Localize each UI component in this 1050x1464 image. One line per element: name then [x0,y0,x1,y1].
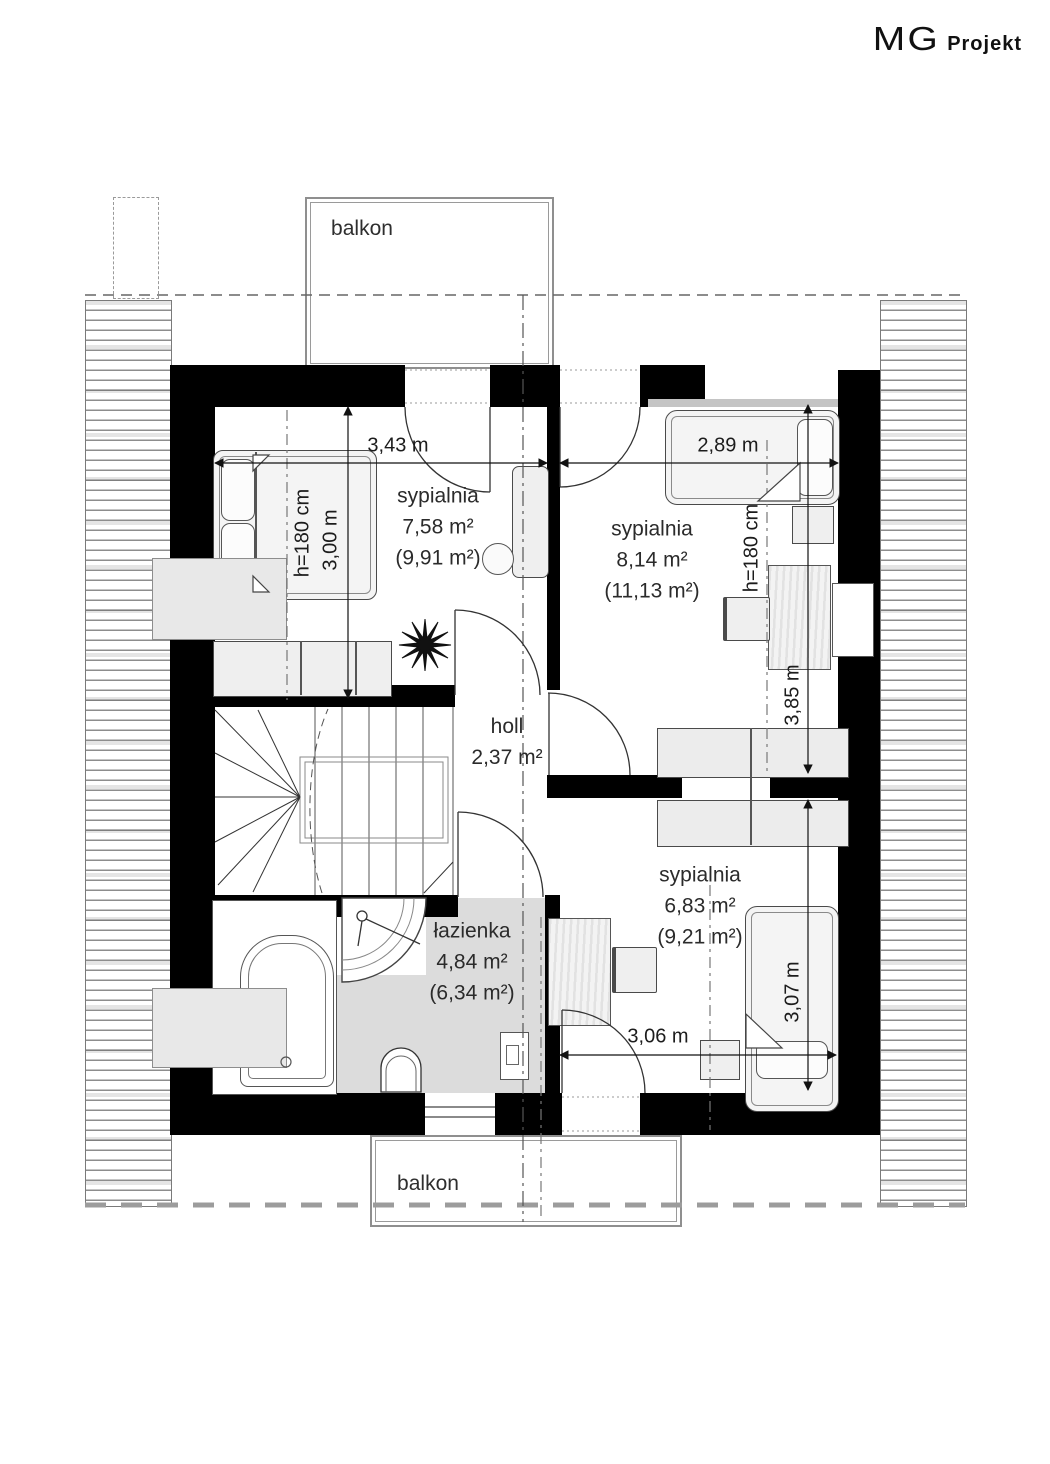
roof-hatch-left [85,300,172,1207]
built-in-wardrobe-lower [657,800,849,847]
pillow [797,419,833,496]
dim-bedroom1-width: 3,43 m [367,435,428,458]
knee-wall-niche-bathroom [152,988,287,1068]
room-name: sypialnia [657,860,742,891]
wall-divider-right-b [770,775,880,798]
dresser-divider [300,641,302,695]
attic-height-left-label: h=180 cm [292,489,315,577]
desk [548,918,611,1026]
room-label-hall: holl 2,37 m² [471,711,542,773]
room-area-gross: (11,13 m²) [604,576,699,607]
room-label-bedroom-3: sypialnia 6,83 m² (9,21 m²) [657,860,742,953]
room-area: 6,83 m² [657,891,742,922]
room-area-gross: (9,21 m²) [657,922,742,953]
floor-plan-page: MG Projekt [0,0,1050,1464]
plant-icon [399,619,451,671]
desk-chair [723,597,770,641]
wardrobe-divider [750,728,752,845]
shelf-niche [832,583,874,657]
staircase [215,707,453,895]
desk [768,565,831,670]
wall-bottom-b [495,1093,562,1135]
room-area: 2,37 m² [471,742,542,773]
roof-hatch-right [880,300,967,1207]
pillow [221,459,255,521]
attic-height-right-label: h=180 cm [741,504,764,592]
wall-bottom-a [170,1093,425,1135]
sink [500,1032,529,1080]
nightstand [700,1040,740,1080]
chimney-outline [113,197,159,299]
dim-bedroom2-height: 3,85 m [782,664,805,725]
room-area: 4,84 m² [429,947,514,978]
nightstand [792,506,834,544]
logo-mg: MG [873,20,940,58]
logo-projekt: Projekt [947,33,1022,56]
balcony-bottom-label: balkon [397,1172,459,1196]
knee-wall-right-bedroom [648,399,838,407]
wall-top-a [170,365,405,407]
wardrobe [512,466,549,578]
dim-bedroom3-width: 3,06 m [627,1026,688,1049]
dim-bedroom3-height: 3,07 m [782,961,805,1022]
sink-basin [506,1045,519,1065]
room-name: sypialnia [604,514,699,545]
room-area: 7,58 m² [395,512,480,543]
wall-divider-right-a [547,775,682,798]
room-label-bedroom-1: sypialnia 7,58 m² (9,91 m²) [395,481,480,574]
brand-logo: MG Projekt [883,20,1022,58]
pillow [756,1041,828,1079]
room-area-gross: (9,91 m²) [395,543,480,574]
desk-chair [612,947,657,993]
dim-bedroom1-height: 3,00 m [320,509,343,570]
room-label-bedroom-2: sypialnia 8,14 m² (11,13 m²) [604,514,699,607]
bathroom-window [425,1093,495,1135]
room-area: 8,14 m² [604,545,699,576]
bathroom-floor2 [333,975,426,1095]
built-in-wardrobe-upper [657,728,849,778]
dresser-divider [355,641,357,695]
stool [482,543,514,575]
room-name: łazienka [429,916,514,947]
dresser [213,641,392,697]
room-name: sypialnia [395,481,480,512]
knee-wall-niche-bedroom1 [152,558,287,640]
room-label-bathroom: łazienka 4,84 m² (6,34 m²) [429,916,514,1009]
dim-bedroom2-width: 2,89 m [697,435,758,458]
room-area-gross: (6,34 m²) [429,978,514,1009]
balcony-top-label: balkon [331,217,393,241]
room-name: holl [471,711,542,742]
